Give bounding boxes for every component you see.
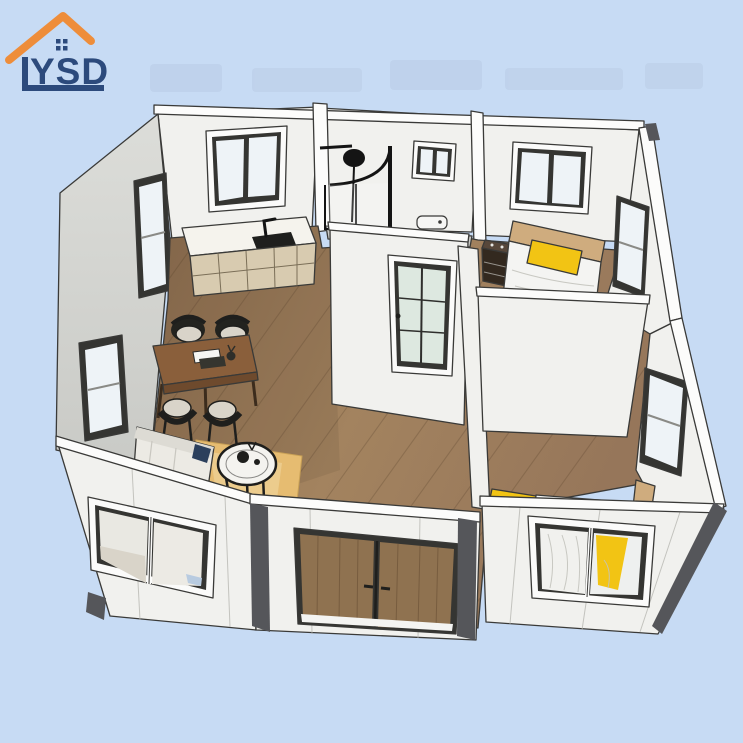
- bedroom2-wall-block: [476, 287, 650, 437]
- door-handle: [381, 588, 390, 589]
- door-handle: [364, 586, 373, 587]
- dining-chair: [171, 317, 205, 342]
- right-wall-window-upper: [613, 196, 649, 297]
- kitchen-window: [206, 126, 287, 212]
- logo-text: YSD: [30, 51, 109, 92]
- shower-head: [343, 149, 365, 167]
- right-wall-window-lower: [640, 368, 688, 476]
- toilet: [417, 216, 447, 229]
- wall-seam-pillar: [471, 111, 486, 248]
- entrance-wall: [250, 494, 480, 640]
- jar: [227, 352, 236, 361]
- bedroom2-front-window: [528, 516, 655, 607]
- bathroom-window: [412, 141, 456, 181]
- left-wall-window-upper: [134, 173, 171, 298]
- kitchen-counter: [182, 217, 316, 296]
- product-image: YSD: [0, 0, 743, 743]
- kettle: [237, 451, 249, 463]
- cup: [254, 459, 260, 465]
- entry-double-door: [294, 528, 460, 634]
- floor-plan-3d-render: YSD: [0, 0, 743, 743]
- bedroom1-window: [510, 142, 592, 214]
- left-wall-window-lower: [79, 335, 128, 441]
- bathroom-front-wall: [328, 222, 469, 425]
- door-handle: [396, 314, 401, 319]
- glass-interior-door: [388, 255, 457, 376]
